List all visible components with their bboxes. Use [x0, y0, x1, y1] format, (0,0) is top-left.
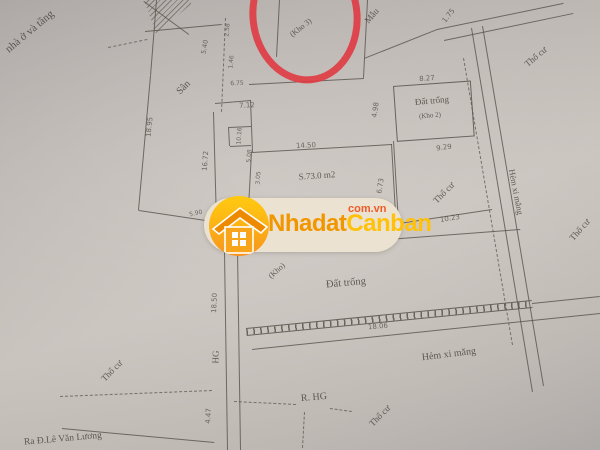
hg-label: HG: [211, 350, 220, 363]
dim-16-72: 16.72: [202, 151, 210, 171]
kho-bottom-label: (Kho): [267, 262, 287, 281]
dashed-boundary-line: [330, 408, 352, 412]
dim-14-50: 14.50: [296, 142, 316, 150]
dim-4-98: 4.98: [371, 102, 380, 118]
hem-xi-mang-bottom: Hẻm xi măng: [421, 347, 476, 364]
dim-6-73: 6.73: [376, 178, 385, 194]
boundary-line: [532, 296, 600, 304]
dim-10-23: 10.23: [440, 214, 461, 224]
dim-6-75: 6.75: [230, 81, 244, 87]
dashed-boundary-line: [234, 401, 296, 405]
boundary-line: [276, 0, 280, 57]
dim-8-27: 8.27: [419, 75, 435, 83]
thocu-middle: Thổ cư: [432, 181, 456, 205]
san-label: Sân: [175, 79, 193, 97]
dim-5-90: 5.90: [189, 210, 203, 219]
hatched-boundary-edge: [246, 300, 533, 336]
ra-le-van-luong-label: Ra Đ.Lê Văn Lương: [24, 432, 103, 448]
dattrong-bottom-label: Đất trống: [326, 277, 367, 291]
dim-1-46: 1.46: [228, 55, 235, 69]
boundary-line: [138, 76, 151, 210]
dashed-boundary-line: [60, 390, 212, 397]
boundary-line: [249, 78, 364, 85]
dim-2-58: 2.58: [224, 23, 231, 37]
survey-drawing-canvas: nhà ở và tầngSânMẫu(Kho 3)Thổ cưĐất trốn…: [0, 0, 600, 450]
dim-10-16: 10.16: [236, 127, 243, 145]
note-top-left: nhà ở và tầng: [4, 9, 56, 56]
logo-brand-text: NhadatCanban: [268, 212, 431, 236]
dashed-boundary-line: [108, 39, 147, 48]
kho3-label: (Kho 3): [289, 17, 314, 39]
dim-3-05: 3.05: [256, 171, 263, 185]
boundary-line: [237, 250, 241, 450]
dim-5-08: 5.08: [247, 149, 254, 163]
boundary-line: [252, 313, 600, 350]
area-label: S.73.0 m2: [298, 170, 335, 182]
boundary-line: [437, 3, 563, 30]
dim-18-50: 18.50: [211, 293, 219, 313]
logo-domain-suffix: com.vn: [348, 204, 387, 215]
boundary-line: [364, 29, 437, 59]
boundary-line: [224, 252, 228, 450]
thocu-bottom-mid: Thổ cư: [368, 404, 392, 428]
house-icon: [209, 196, 269, 256]
r-hg-label: R. HG: [301, 392, 328, 404]
watermark-logo: NhadatCanban com.vn: [204, 198, 402, 252]
boundary-line: [252, 144, 392, 153]
dim-5-40: 5.40: [201, 39, 210, 54]
dim-18-95: 18.95: [145, 117, 154, 138]
dim-9-29: 9.29: [436, 144, 452, 153]
thocu-top-right: Thổ cư: [523, 45, 548, 68]
boundary-line: [230, 145, 251, 147]
dim-7-12: 7.12: [239, 102, 255, 110]
logo-brand-part1: Nhadat: [268, 210, 346, 237]
thocu-bottom-left: Thổ cư: [100, 359, 124, 383]
dim-1-75: 1.75: [441, 8, 456, 25]
dashed-boundary-line: [302, 412, 305, 448]
dim-4-47: 4.47: [205, 408, 213, 424]
dim-18-06: 18.06: [368, 323, 389, 332]
boundary-line: [444, 13, 573, 41]
thocu-far-right: Thổ cư: [568, 217, 592, 242]
boundary-line: [228, 127, 230, 146]
